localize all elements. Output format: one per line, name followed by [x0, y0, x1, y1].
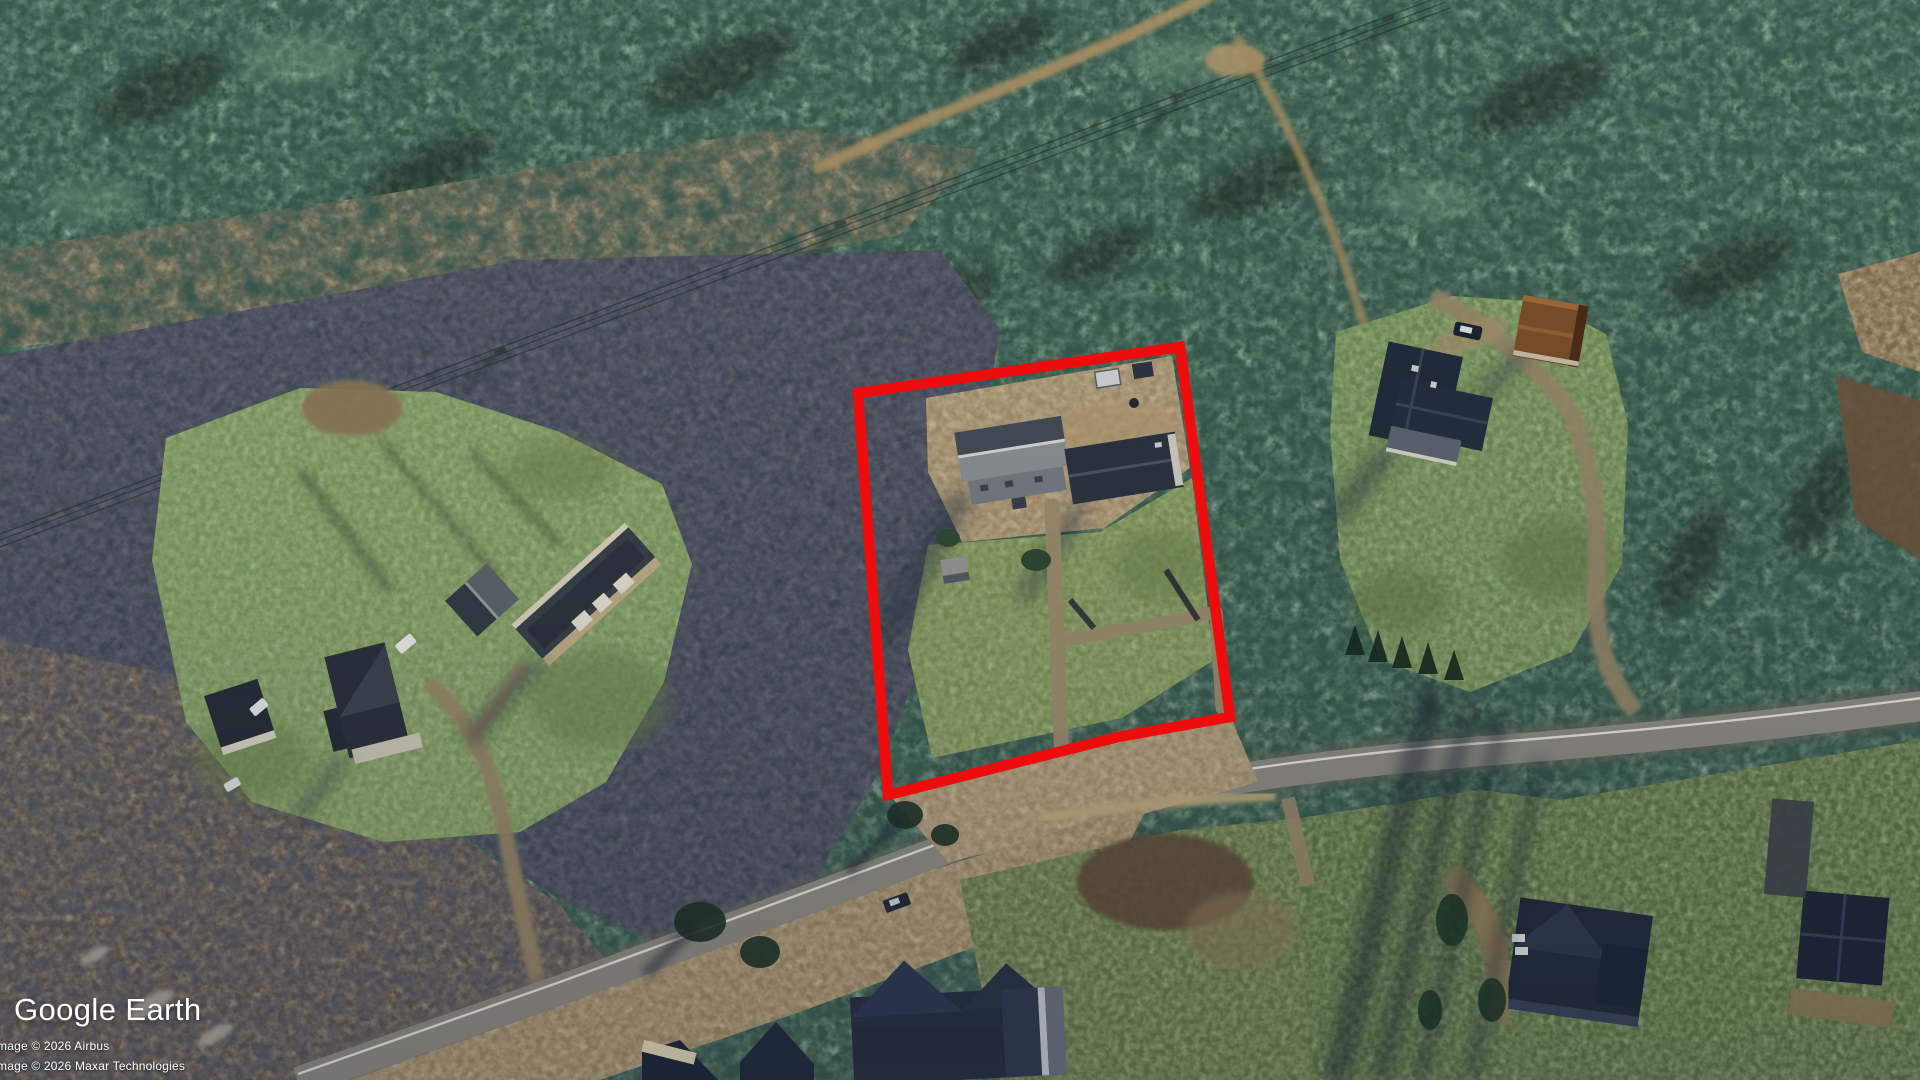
google-earth-logo: Google Earth [14, 992, 201, 1028]
attribution-line-maxar: mage © 2026 Maxar Technologies [0, 1056, 185, 1076]
attribution-line-airbus: mage © 2026 Airbus [0, 1036, 185, 1056]
google-earth-viewport[interactable]: Google Earth mage © 2026 Airbus mage © 2… [0, 0, 1920, 1080]
satellite-map-canvas[interactable] [0, 0, 1920, 1080]
dusk-tint [0, 0, 1920, 1080]
imagery-attribution: mage © 2026 Airbus mage © 2026 Maxar Tec… [0, 1036, 185, 1076]
